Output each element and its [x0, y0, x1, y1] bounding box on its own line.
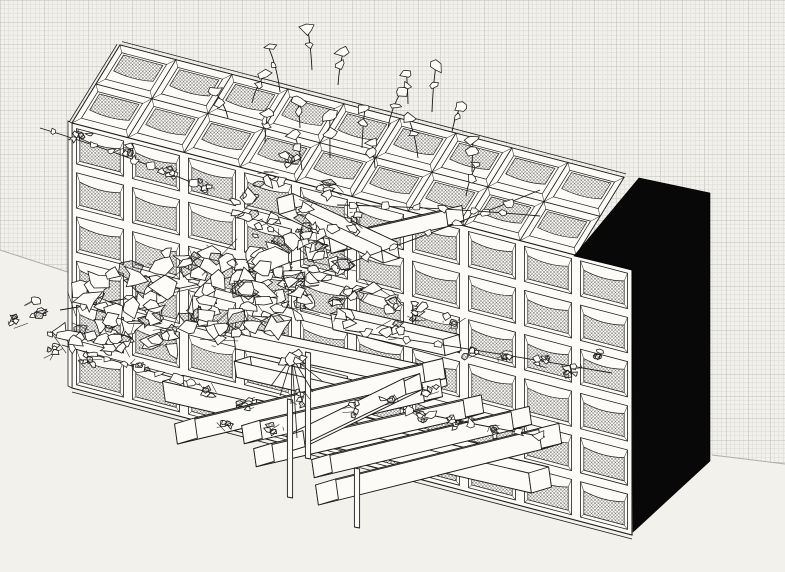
architectural-illustration [0, 0, 785, 572]
drawing-svg [0, 0, 785, 572]
